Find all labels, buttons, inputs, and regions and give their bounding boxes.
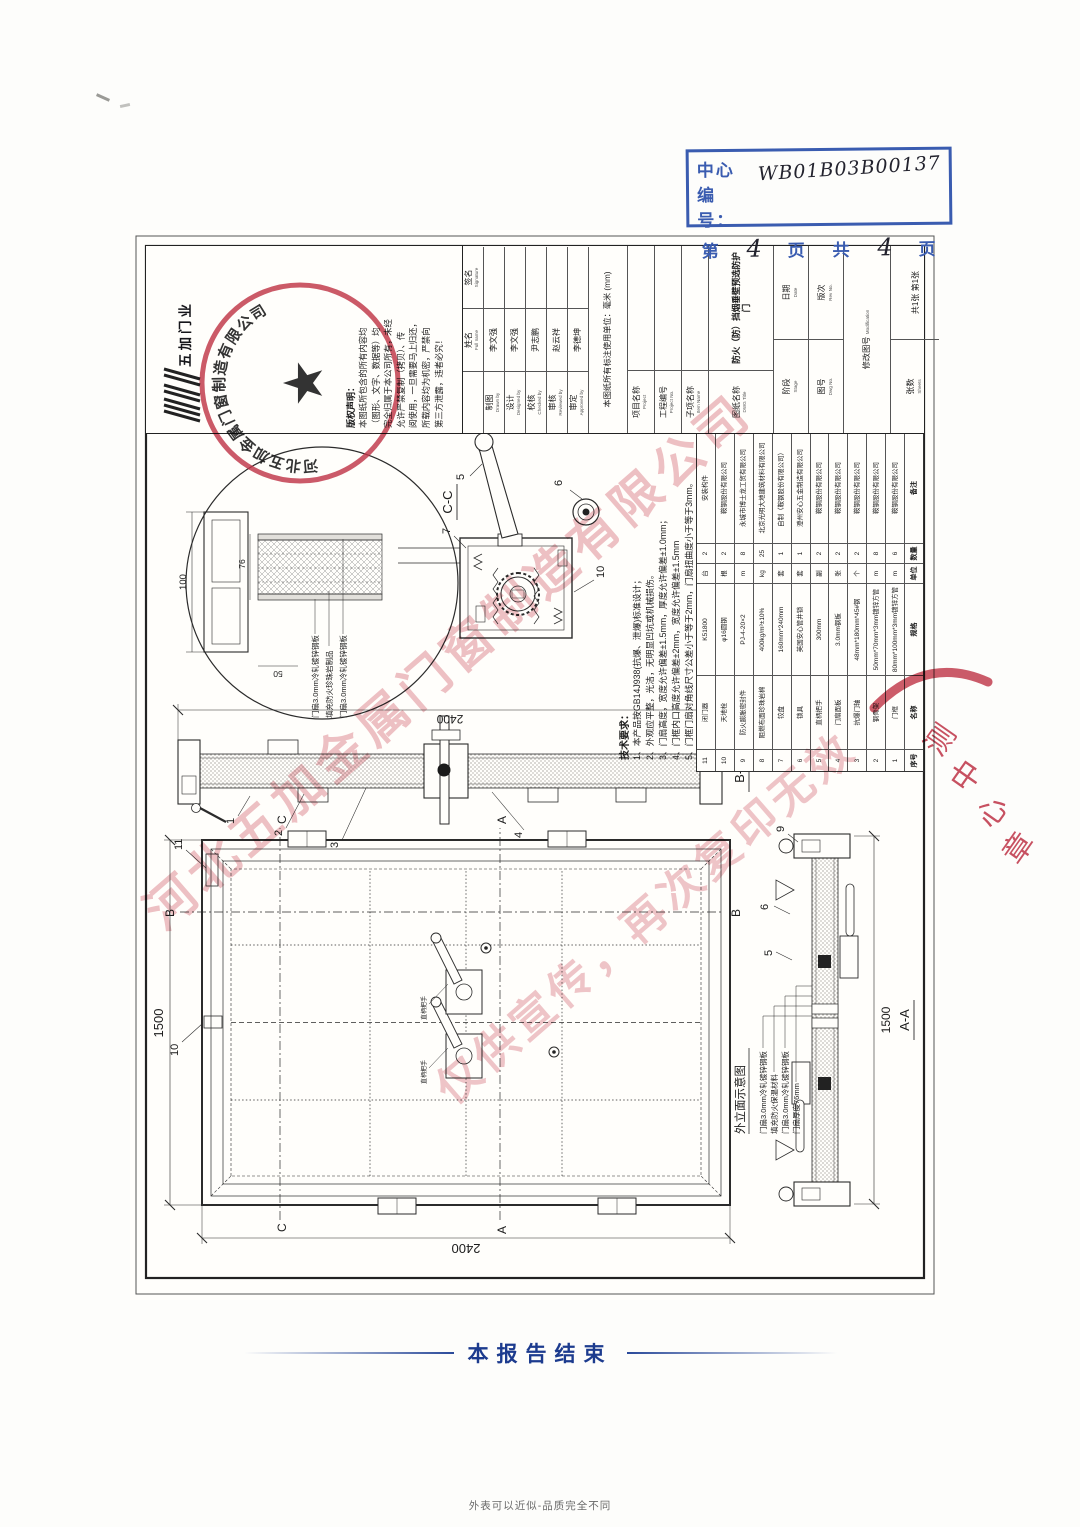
scan-artifact	[96, 93, 110, 101]
bom-cell: 2	[716, 543, 734, 563]
bom-cell: 25	[754, 543, 772, 563]
bom-cell: m	[735, 563, 753, 583]
bom-cell: 鞍钢股份有限公司	[886, 433, 904, 543]
bom-cell: PJ-4-20×2	[735, 583, 753, 675]
engineering-no-value	[655, 246, 681, 370]
center-number-value: WB01B03B00137	[757, 152, 941, 185]
bom-cell: 数量	[905, 543, 923, 563]
bom-cell: 单位	[905, 563, 923, 583]
aa-material-label: 门扇厚度76mm	[791, 1083, 801, 1134]
section-letter-b: B	[729, 909, 743, 917]
bom-cell: 400kg/m³±10%	[754, 583, 772, 675]
bom-cell: 9	[735, 749, 753, 771]
report-end-row: 本报告结束	[0, 1338, 1080, 1368]
divider-line	[627, 1352, 837, 1354]
scanned-report-page: 中心编号： WB01B03B00137 第 4 页 共 4 页	[0, 0, 1080, 1527]
callout-6: 6	[759, 904, 771, 910]
bom-cell: 4	[829, 749, 847, 771]
bom-cell: 鞍钢股份有限公司	[867, 433, 885, 543]
bom-cell: 台	[697, 563, 715, 583]
aa-material-label: 填充防火保温材料	[769, 1074, 779, 1134]
bom-cell: 天地栓	[716, 675, 734, 749]
center-number-label: 中心编号：	[697, 156, 753, 232]
bom-cell: 2	[848, 543, 866, 563]
bom-cell: 北京光明大地建筑材料有限公司	[754, 433, 772, 543]
bom-cell: 阻燃布面珍珠岩棉	[754, 675, 772, 749]
tb-cell: 赵云祥	[547, 308, 568, 371]
tb-cell: 制图Drawn by	[484, 371, 505, 433]
ring-markers	[481, 943, 559, 1057]
bom-row: 5直柄把手300mm副2鞍钢股份有限公司	[810, 433, 829, 771]
stamp-char: 测	[919, 719, 963, 763]
page-label1: 页	[788, 236, 807, 261]
bom-cell: 鞍钢股份有限公司	[716, 433, 734, 543]
bom-cell: 6	[886, 543, 904, 563]
dim-text: 2400	[452, 1241, 481, 1256]
tb-cell: 李文强	[484, 308, 505, 371]
title-column: 五加门业 版权声明： 本图纸所包含的所有内容均 （图形、文字、数据等）均 完全归…	[146, 246, 924, 434]
tb-cell	[547, 247, 568, 308]
unit-note: 本图纸所有标注使用单位：毫米 (mm)	[589, 246, 628, 433]
bom-cell: 张	[829, 563, 847, 583]
callout-10: 10	[169, 1044, 181, 1056]
bom-row: 6锁具英国安心管井锁套1澄州安心五金制造有限公司	[791, 433, 810, 771]
stage-date-row: 阶段Stage 日期Date	[774, 246, 809, 433]
page-prefix: 第	[702, 237, 721, 262]
bom-cell: 鞍钢股份有限公司	[811, 433, 829, 543]
section-letter-a: A	[495, 1226, 509, 1234]
bom-cell: 闭门器	[697, 675, 715, 749]
tb-cell	[526, 247, 547, 308]
bom-cell: 锁具	[792, 675, 810, 749]
bom-row: 4门扇面板3.0mm钢板张2鞍钢股份有限公司	[828, 433, 847, 771]
sign-header-en: Signature	[473, 268, 481, 288]
dim-text: 1500	[879, 1006, 893, 1033]
company-round-stamp: 河北五加金属门窗制造有限公司 ★	[190, 277, 406, 489]
bom-cell: 套	[792, 563, 810, 583]
bom-cell: 铰盘	[773, 675, 791, 749]
stamp-star-icon: ★	[274, 359, 334, 407]
bom-cell: 1	[792, 543, 810, 563]
center-number-box: 中心编号： WB01B03B00137 第 4 页 共 4 页	[686, 147, 953, 228]
bom-cell: 个	[848, 563, 866, 583]
page-number-handwritten: 4	[746, 239, 761, 259]
tb-cell: 审核Reviewed by	[547, 371, 568, 433]
bom-cell: 2	[697, 543, 715, 563]
callout-4: 4	[513, 832, 525, 838]
door-elevation: 直柄把手 直柄把手	[151, 815, 743, 1256]
project-row: 项目名称Project	[628, 246, 655, 433]
bom-cell: 澄州安心五金制造有限公司	[792, 433, 810, 543]
cc-material-label: 填充防火珍珠岩制品	[324, 651, 334, 719]
callout-1: 1	[225, 818, 237, 824]
bom-cell: 鞍钢股份有限公司	[829, 433, 847, 543]
bom-row: 8阻燃布面珍珠岩棉400kg/m³±10%kg25北京光明大地建筑材料有限公司	[753, 433, 772, 771]
scan-artifact	[120, 103, 130, 108]
tech-notes-title: 技术要求：	[616, 434, 631, 760]
bom-cell: 6	[792, 749, 810, 771]
bom-cell: 8	[754, 749, 772, 771]
bom-cell: m	[867, 563, 885, 583]
tb-cell	[484, 247, 505, 308]
callout-11: 11	[173, 839, 185, 850]
bom-cell: 套	[773, 563, 791, 583]
bom-cell: 7	[773, 749, 791, 771]
bom-cell: K51800	[697, 583, 715, 675]
bom-cell: 副	[811, 563, 829, 583]
cc-material-label: 门扇3.0mm冷轧镀锌钢板	[310, 635, 320, 718]
tb-cell: 校核Checked by	[526, 371, 547, 433]
dwg-title-value: 防火（防）挡烟垂壁预选防护门	[709, 246, 773, 370]
dim-text: 50	[273, 669, 283, 679]
tb-cell	[463, 371, 484, 433]
bom-cell: 160mm*240mm	[773, 583, 791, 675]
bom-cell: 5	[811, 749, 829, 771]
elevation-caption-block: 外立面示意图 门扇3.0mm冷轧镀锌钢板 填充防火保温材料 门扇3.0mm冷轧镀…	[733, 986, 812, 1134]
callout-10: 10	[595, 566, 607, 578]
name-header: 姓名	[465, 332, 473, 348]
handle-label: 直柄把手	[420, 996, 428, 1020]
bom-cell: 2	[811, 543, 829, 563]
page-total-handwritten: 4	[877, 237, 892, 257]
sheets-value: 共1张 第1张	[911, 271, 920, 314]
callout-5: 5	[455, 474, 467, 480]
stamp-char: 中	[945, 755, 989, 799]
bom-cell: φ16圆钢	[716, 583, 734, 675]
bom-cell: 门扇面板	[829, 675, 847, 749]
item-name-value	[682, 246, 708, 370]
project-value	[628, 246, 654, 370]
tb-cell	[505, 247, 526, 308]
bottom-caption: 外表可以近似-品质完全不同	[0, 1498, 1080, 1513]
dim-text: 1500	[151, 1009, 166, 1038]
elevation-caption: 外立面示意图	[733, 1065, 747, 1134]
bom-row: 9防火膨胀密封件PJ-4-20×2m8永城市博士龙工贸有限公司	[734, 433, 753, 771]
flush-bolt-mark	[204, 1016, 222, 1028]
title-block: 姓名 Full name 签名 Signature 制图Drawn by 李文强…	[462, 246, 924, 433]
page-label2: 共	[832, 236, 851, 261]
bom-cell: 鞍钢股份有限公司	[848, 433, 866, 543]
section-aa: 1500 A-A 9 5 6	[759, 826, 914, 1209]
item-name-row: 子项名称Item Name	[682, 246, 709, 433]
dim-text: 2400	[436, 712, 463, 726]
door-closer-mark	[206, 854, 218, 886]
bom-cell: 1	[773, 543, 791, 563]
tb-cell: 李文强	[505, 308, 526, 371]
drawing-sheet-rotated: 直柄把手 直柄把手	[130, 230, 940, 1300]
tb-cell: 尹志鹏	[526, 308, 547, 371]
modification-row: 修改图号 Modification	[844, 246, 891, 433]
bom-cell: 安装构件	[697, 433, 715, 543]
lock-assembly-right: 直柄把手	[420, 933, 482, 1020]
callout-2: 2	[273, 830, 285, 836]
detail-lock: 7 5 6 10	[398, 433, 607, 638]
bom-cell: 防火膨胀密封件	[735, 675, 753, 749]
dim-1500-top: 1500	[151, 835, 202, 1210]
bom-cell: 英国安心管井锁	[792, 583, 810, 675]
personnel-table: 姓名 Full name 签名 Signature 制图Drawn by 李文强…	[463, 246, 589, 433]
dwgno-rev-row: 图号Dwg No. 版次Rev No.	[809, 246, 844, 433]
divider-line	[244, 1352, 454, 1354]
bom-cell: 备注	[905, 433, 923, 543]
callout-7: 7	[441, 528, 453, 534]
section-label-aa: A-A	[897, 1009, 912, 1031]
bom-cell: 根	[716, 563, 734, 583]
bom-cell: 永城市博士龙工贸有限公司	[735, 433, 753, 543]
bom-row: 7铰盘160mm*240mm套1自制（鞍钢股份有限公司）	[772, 433, 791, 771]
section-letter-a: A	[495, 816, 509, 824]
section-letter-c: C	[275, 1223, 289, 1232]
bom-cell: 3.0mm钢板	[829, 583, 847, 675]
callout-9: 9	[775, 826, 787, 832]
bom-cell: m	[886, 563, 904, 583]
name-header-en: Full name	[473, 330, 481, 350]
tb-cell: 签名 Signature	[463, 247, 484, 308]
callout-6: 6	[553, 480, 565, 486]
key-cylinder	[573, 499, 599, 525]
bom-cell: 11	[697, 749, 715, 771]
dim-text: 76	[237, 559, 247, 569]
callout-3: 3	[329, 842, 341, 848]
bom-cell: 2	[829, 543, 847, 563]
bom-cell: 自制（鞍钢股份有限公司）	[773, 433, 791, 543]
bom-cell: 10	[716, 749, 734, 771]
page-label3: 页	[918, 235, 937, 260]
sheets-row: 张数Sheets 共1张 第1张	[891, 246, 939, 433]
dim-text: 100	[178, 574, 189, 590]
tb-cell: 设计Designed by	[505, 371, 526, 433]
cc-material-label: 门扇3.0mm冷轧镀锌钢板	[338, 635, 348, 718]
bom-row: 11闭门器K51800台2安装构件	[697, 433, 715, 771]
engineering-no-row: 工程编号Project No.	[655, 246, 682, 433]
tb-cell: 审定Approved by	[568, 371, 589, 433]
tech-notes: 技术要求： 1、本产品按GB14J938(抗爆、泄爆)标准设计； 2、外观应平整…	[616, 434, 696, 760]
stamp-char: 章	[997, 827, 1041, 871]
partial-center-stamp: 测 中 心 章	[856, 616, 1080, 880]
stamp-char: 心	[971, 791, 1015, 835]
dim-50: 50	[258, 666, 298, 679]
report-end-text: 本报告结束	[468, 1338, 613, 1368]
dim-100: 100	[178, 512, 204, 652]
section-letter-c: C	[275, 815, 289, 824]
bom-cell: 8	[735, 543, 753, 563]
bom-cell: 300mm	[811, 583, 829, 675]
bom-cell: 8	[867, 543, 885, 563]
tb-cell: 李德坤	[568, 308, 589, 371]
callout-5: 5	[763, 950, 775, 956]
section-label-cc: C-C	[440, 490, 455, 513]
tech-notes-lines: 1、本产品按GB14J938(抗爆、泄爆)标准设计； 2、外观应平整，光洁，无明…	[631, 434, 696, 760]
bom-row: 10天地栓φ16圆钢根2鞍钢股份有限公司	[715, 433, 734, 771]
bom-cell: kg	[754, 563, 772, 583]
tb-cell	[568, 247, 589, 308]
tb-cell: 姓名 Full name	[463, 308, 484, 371]
aa-material-label: 门扇3.0mm冷轧镀锌钢板	[780, 1051, 790, 1134]
dim-1500-aa: 1500	[854, 831, 893, 1209]
dwg-title-row: 图纸名称DWG Title 防火（防）挡烟垂壁预选防护门	[709, 246, 774, 433]
aa-material-label: 门扇3.0mm冷轧镀锌钢板	[758, 1051, 768, 1134]
bom-cell: 直柄把手	[811, 675, 829, 749]
sign-header: 签名	[465, 270, 473, 286]
handle-label: 直柄把手	[420, 1060, 428, 1084]
